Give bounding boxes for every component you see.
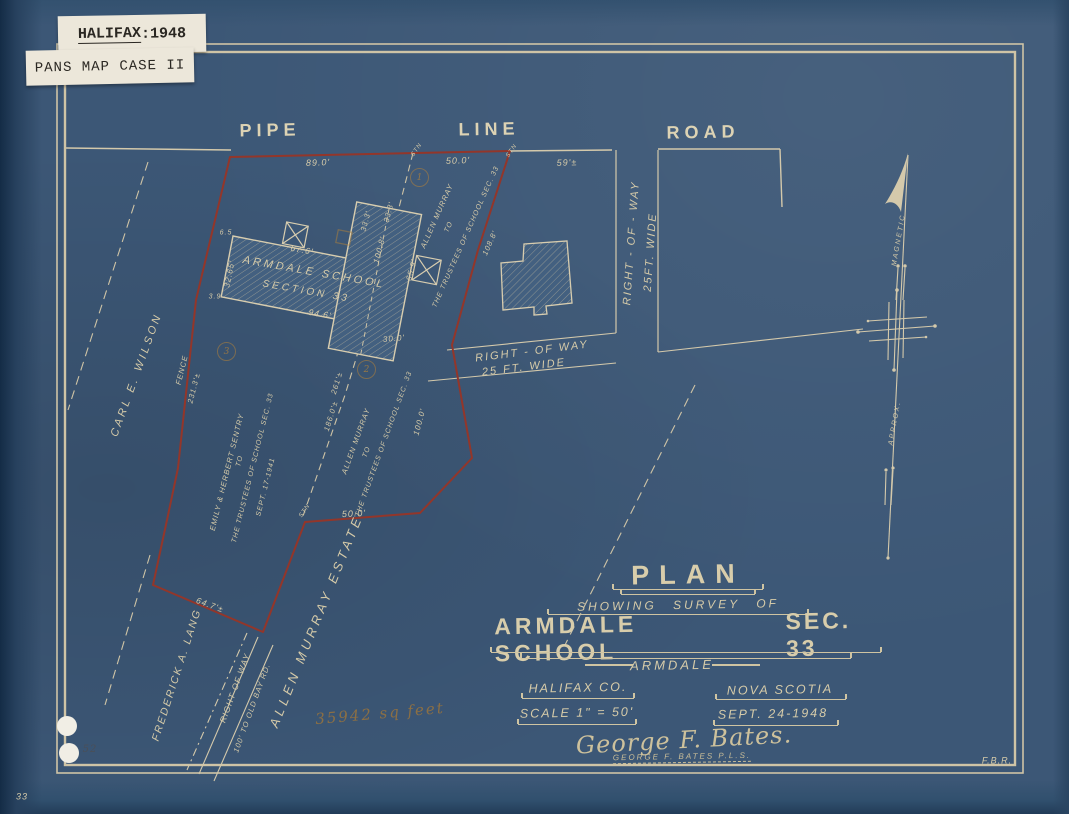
scale-rule	[518, 724, 636, 725]
pencil-circled-3: 3	[217, 342, 236, 361]
page-number: 33	[16, 793, 28, 802]
plan-date: SEPT. 24-1948	[718, 707, 829, 721]
plan-province: NOVA SCOTIA	[727, 683, 833, 697]
punch-hole-note: 52	[83, 745, 98, 755]
dim-offset-bottom: 3.9	[209, 294, 222, 301]
place-dash-right	[712, 664, 760, 666]
pencil-circled-2: 2	[357, 360, 376, 379]
plan-county: HALIFAX CO.	[528, 681, 627, 695]
archive-sticker-pans: PANS MAP CASE II	[26, 47, 195, 86]
county-rule	[522, 698, 634, 699]
north-arrow	[856, 153, 937, 560]
road-name-pipe: PIPE	[239, 120, 300, 139]
dim-top-89: 89.0'	[306, 158, 331, 168]
plan-place: ARMDALE	[630, 658, 714, 672]
blueprint-sheet: HALIFAX:1948 PANS MAP CASE II PIPE LINE …	[0, 0, 1069, 814]
plan-scale: SCALE 1" = 50'	[520, 706, 635, 720]
dim-top-59: 59'±	[557, 158, 578, 168]
place-dash-left	[585, 664, 633, 666]
plan-name-rule	[491, 652, 881, 653]
plan-title-rule	[613, 589, 763, 590]
sticker-halifax-year: :1948	[141, 25, 186, 43]
plan-sec: SEC. 33	[785, 607, 878, 663]
road-name-line: LINE	[458, 119, 519, 138]
plan-title-rule2	[621, 594, 755, 595]
neighbour-building	[501, 241, 572, 315]
sticker-halifax-word: HALIFAX	[78, 25, 141, 44]
punch-holes	[57, 716, 79, 763]
dim-top-50: 50.0'	[446, 156, 471, 166]
dim-offset-top: 6.5	[220, 230, 233, 237]
road-name-road: ROAD	[666, 122, 739, 141]
drafter-initials: F.B.R.	[982, 757, 1012, 766]
province-rule	[716, 699, 846, 700]
pencil-circled-1: 1	[410, 168, 429, 187]
plan-title: PLAN	[631, 561, 745, 590]
